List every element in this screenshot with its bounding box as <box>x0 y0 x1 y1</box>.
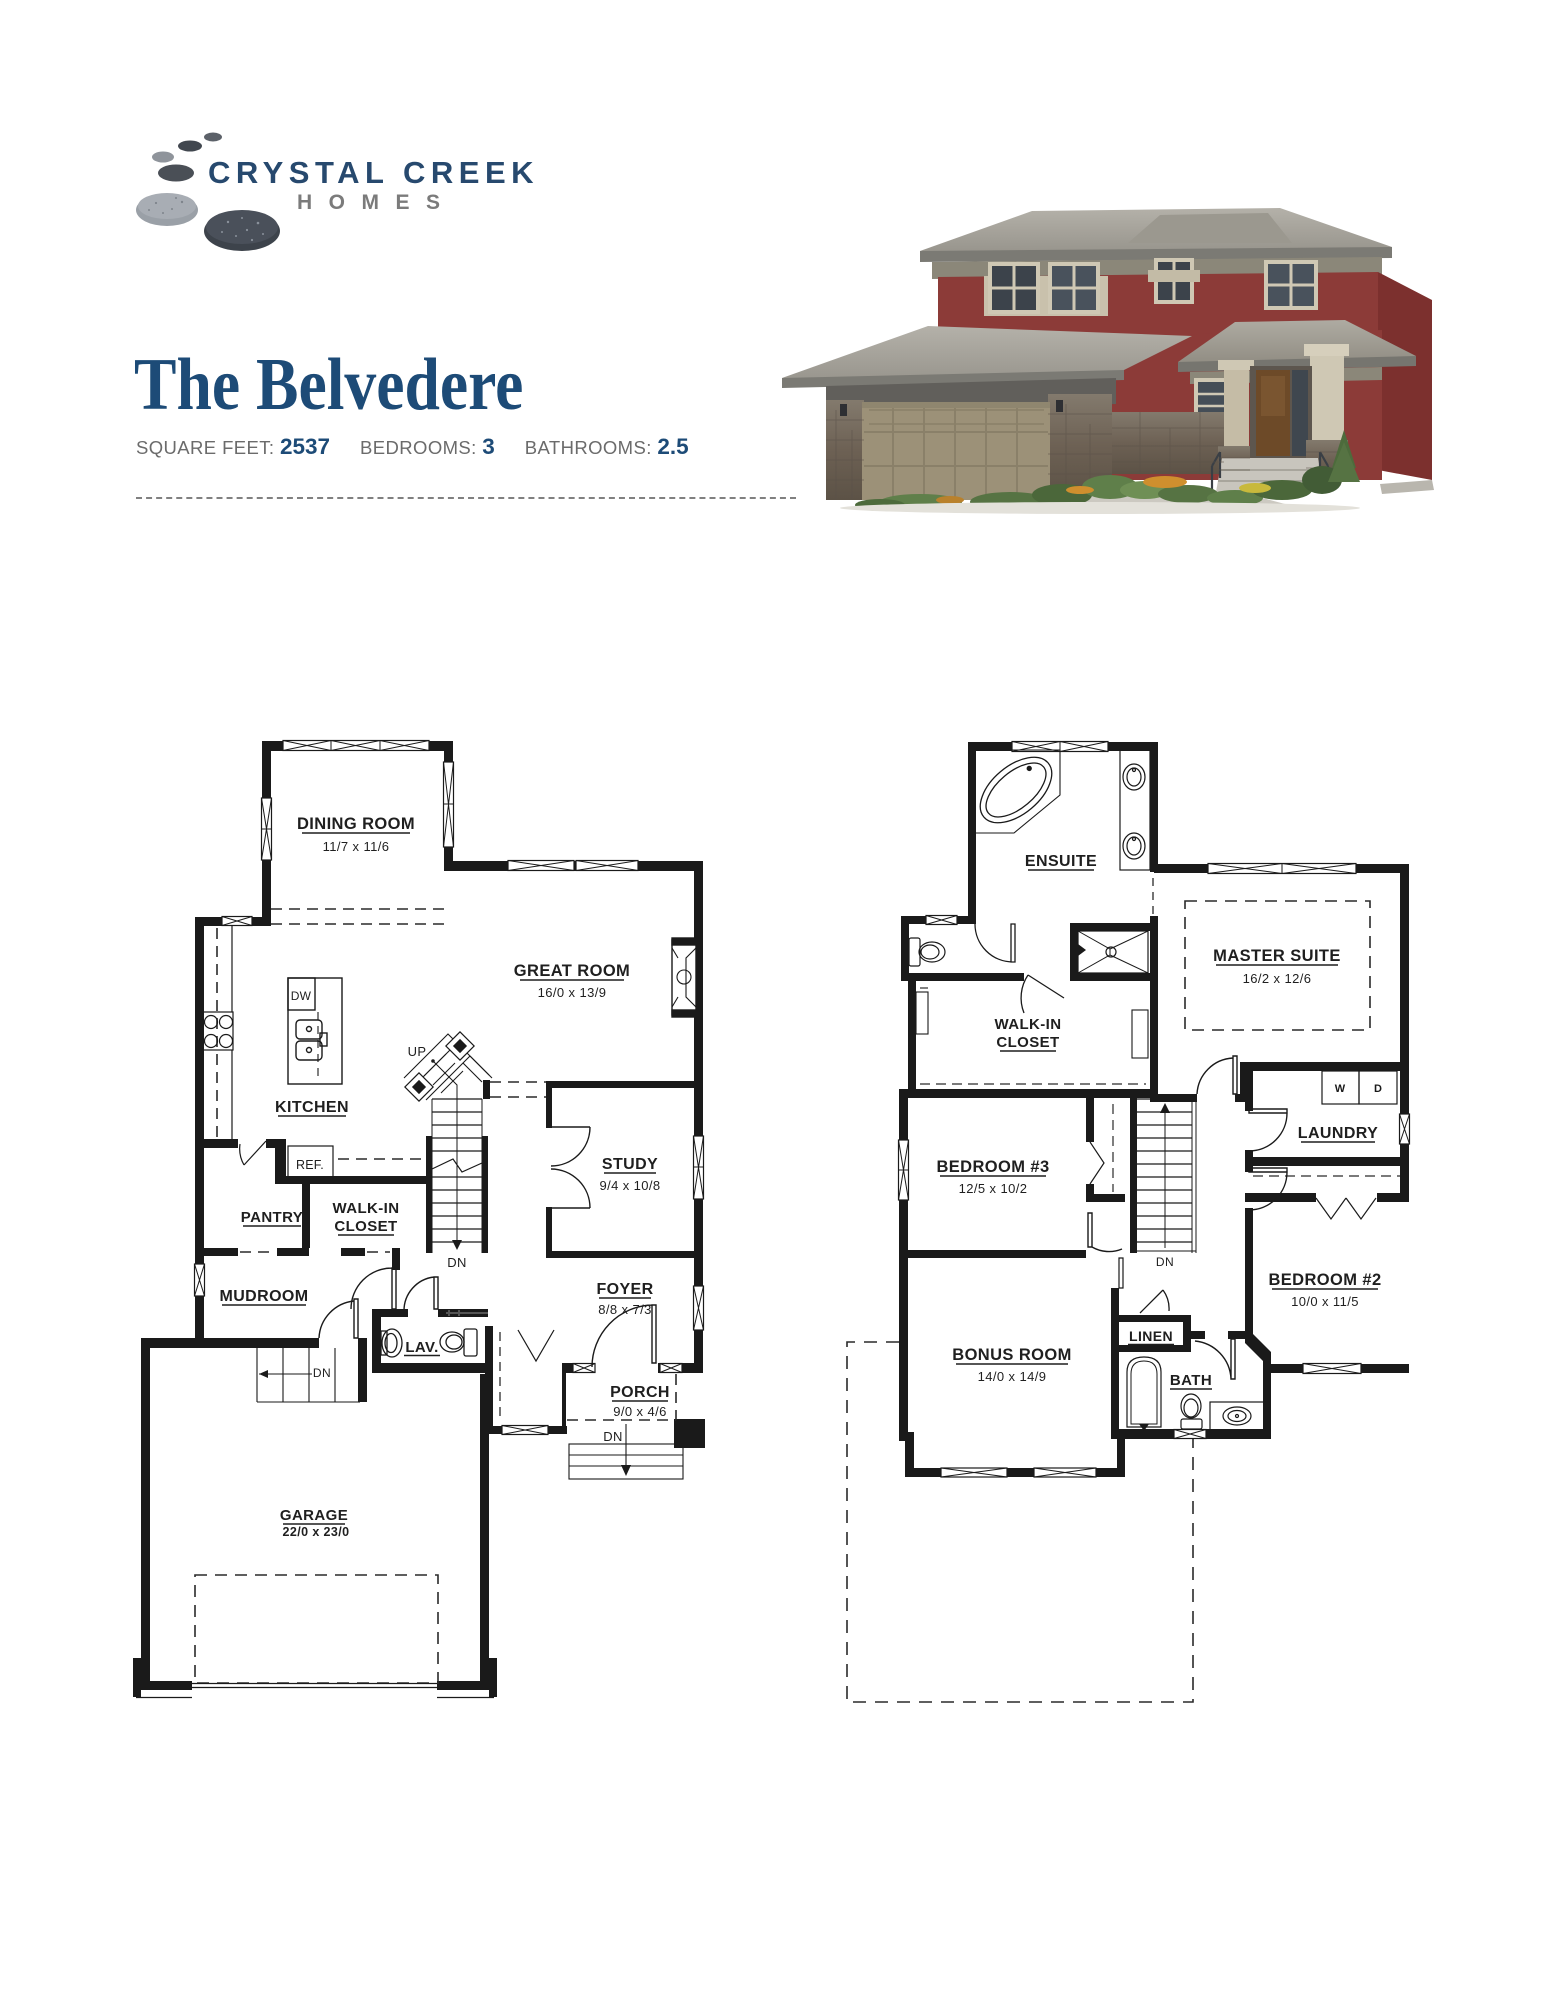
svg-text:LAUNDRY: LAUNDRY <box>1298 1125 1378 1142</box>
svg-text:8/8 x 7/3: 8/8 x 7/3 <box>598 1302 651 1317</box>
svg-text:16/2 x 12/6: 16/2 x 12/6 <box>1243 971 1312 986</box>
svg-text:HOMES: HOMES <box>297 191 457 214</box>
svg-text:FOYER: FOYER <box>596 1281 653 1298</box>
svg-text:D: D <box>1374 1083 1382 1095</box>
svg-text:9/0 x 4/6: 9/0 x 4/6 <box>613 1404 666 1419</box>
svg-text:MUDROOM: MUDROOM <box>219 1288 308 1305</box>
svg-text:PANTRY: PANTRY <box>241 1209 303 1226</box>
svg-text:CRYSTAL CREEK: CRYSTAL CREEK <box>208 155 539 190</box>
svg-text:DN: DN <box>1156 1255 1174 1269</box>
svg-text:CLOSET: CLOSET <box>996 1034 1059 1051</box>
svg-text:DINING ROOM: DINING ROOM <box>297 815 415 833</box>
svg-text:12/5 x 10/2: 12/5 x 10/2 <box>959 1181 1028 1196</box>
svg-text:9/4 x 10/8: 9/4 x 10/8 <box>599 1178 660 1193</box>
svg-text:WALK-IN: WALK-IN <box>333 1200 400 1217</box>
svg-text:BATH: BATH <box>1170 1372 1212 1389</box>
svg-text:16/0 x 13/9: 16/0 x 13/9 <box>538 985 607 1000</box>
svg-text:LINEN: LINEN <box>1129 1328 1173 1344</box>
svg-text:GARAGE: GARAGE <box>280 1507 348 1524</box>
svg-text:BEDROOM #3: BEDROOM #3 <box>936 1158 1049 1176</box>
svg-text:BEDROOM #2: BEDROOM #2 <box>1268 1271 1381 1289</box>
svg-text:W: W <box>1335 1083 1346 1095</box>
svg-text:LAV.: LAV. <box>405 1339 438 1356</box>
svg-text:14/0 x 14/9: 14/0 x 14/9 <box>978 1369 1047 1384</box>
svg-text:STUDY: STUDY <box>602 1156 658 1173</box>
svg-text:GREAT ROOM: GREAT ROOM <box>514 962 630 980</box>
svg-text:PORCH: PORCH <box>610 1384 670 1401</box>
svg-text:CLOSET: CLOSET <box>334 1218 397 1235</box>
svg-text:DN: DN <box>447 1255 467 1270</box>
svg-text:REF.: REF. <box>296 1158 324 1172</box>
svg-text:22/0 x 23/0: 22/0 x 23/0 <box>283 1525 350 1539</box>
svg-text:10/0 x 11/5: 10/0 x 11/5 <box>1291 1294 1359 1309</box>
svg-text:KITCHEN: KITCHEN <box>275 1099 349 1116</box>
svg-text:DN: DN <box>603 1429 623 1444</box>
svg-text:DW: DW <box>291 989 312 1003</box>
svg-text:UP: UP <box>408 1044 427 1059</box>
svg-text:WALK-IN: WALK-IN <box>995 1016 1062 1033</box>
svg-text:DN: DN <box>313 1366 331 1380</box>
svg-text:11/7 x 11/6: 11/7 x 11/6 <box>323 839 390 854</box>
svg-text:ENSUITE: ENSUITE <box>1025 853 1097 870</box>
svg-text:MASTER SUITE: MASTER SUITE <box>1213 947 1341 965</box>
svg-text:BONUS ROOM: BONUS ROOM <box>952 1346 1072 1364</box>
